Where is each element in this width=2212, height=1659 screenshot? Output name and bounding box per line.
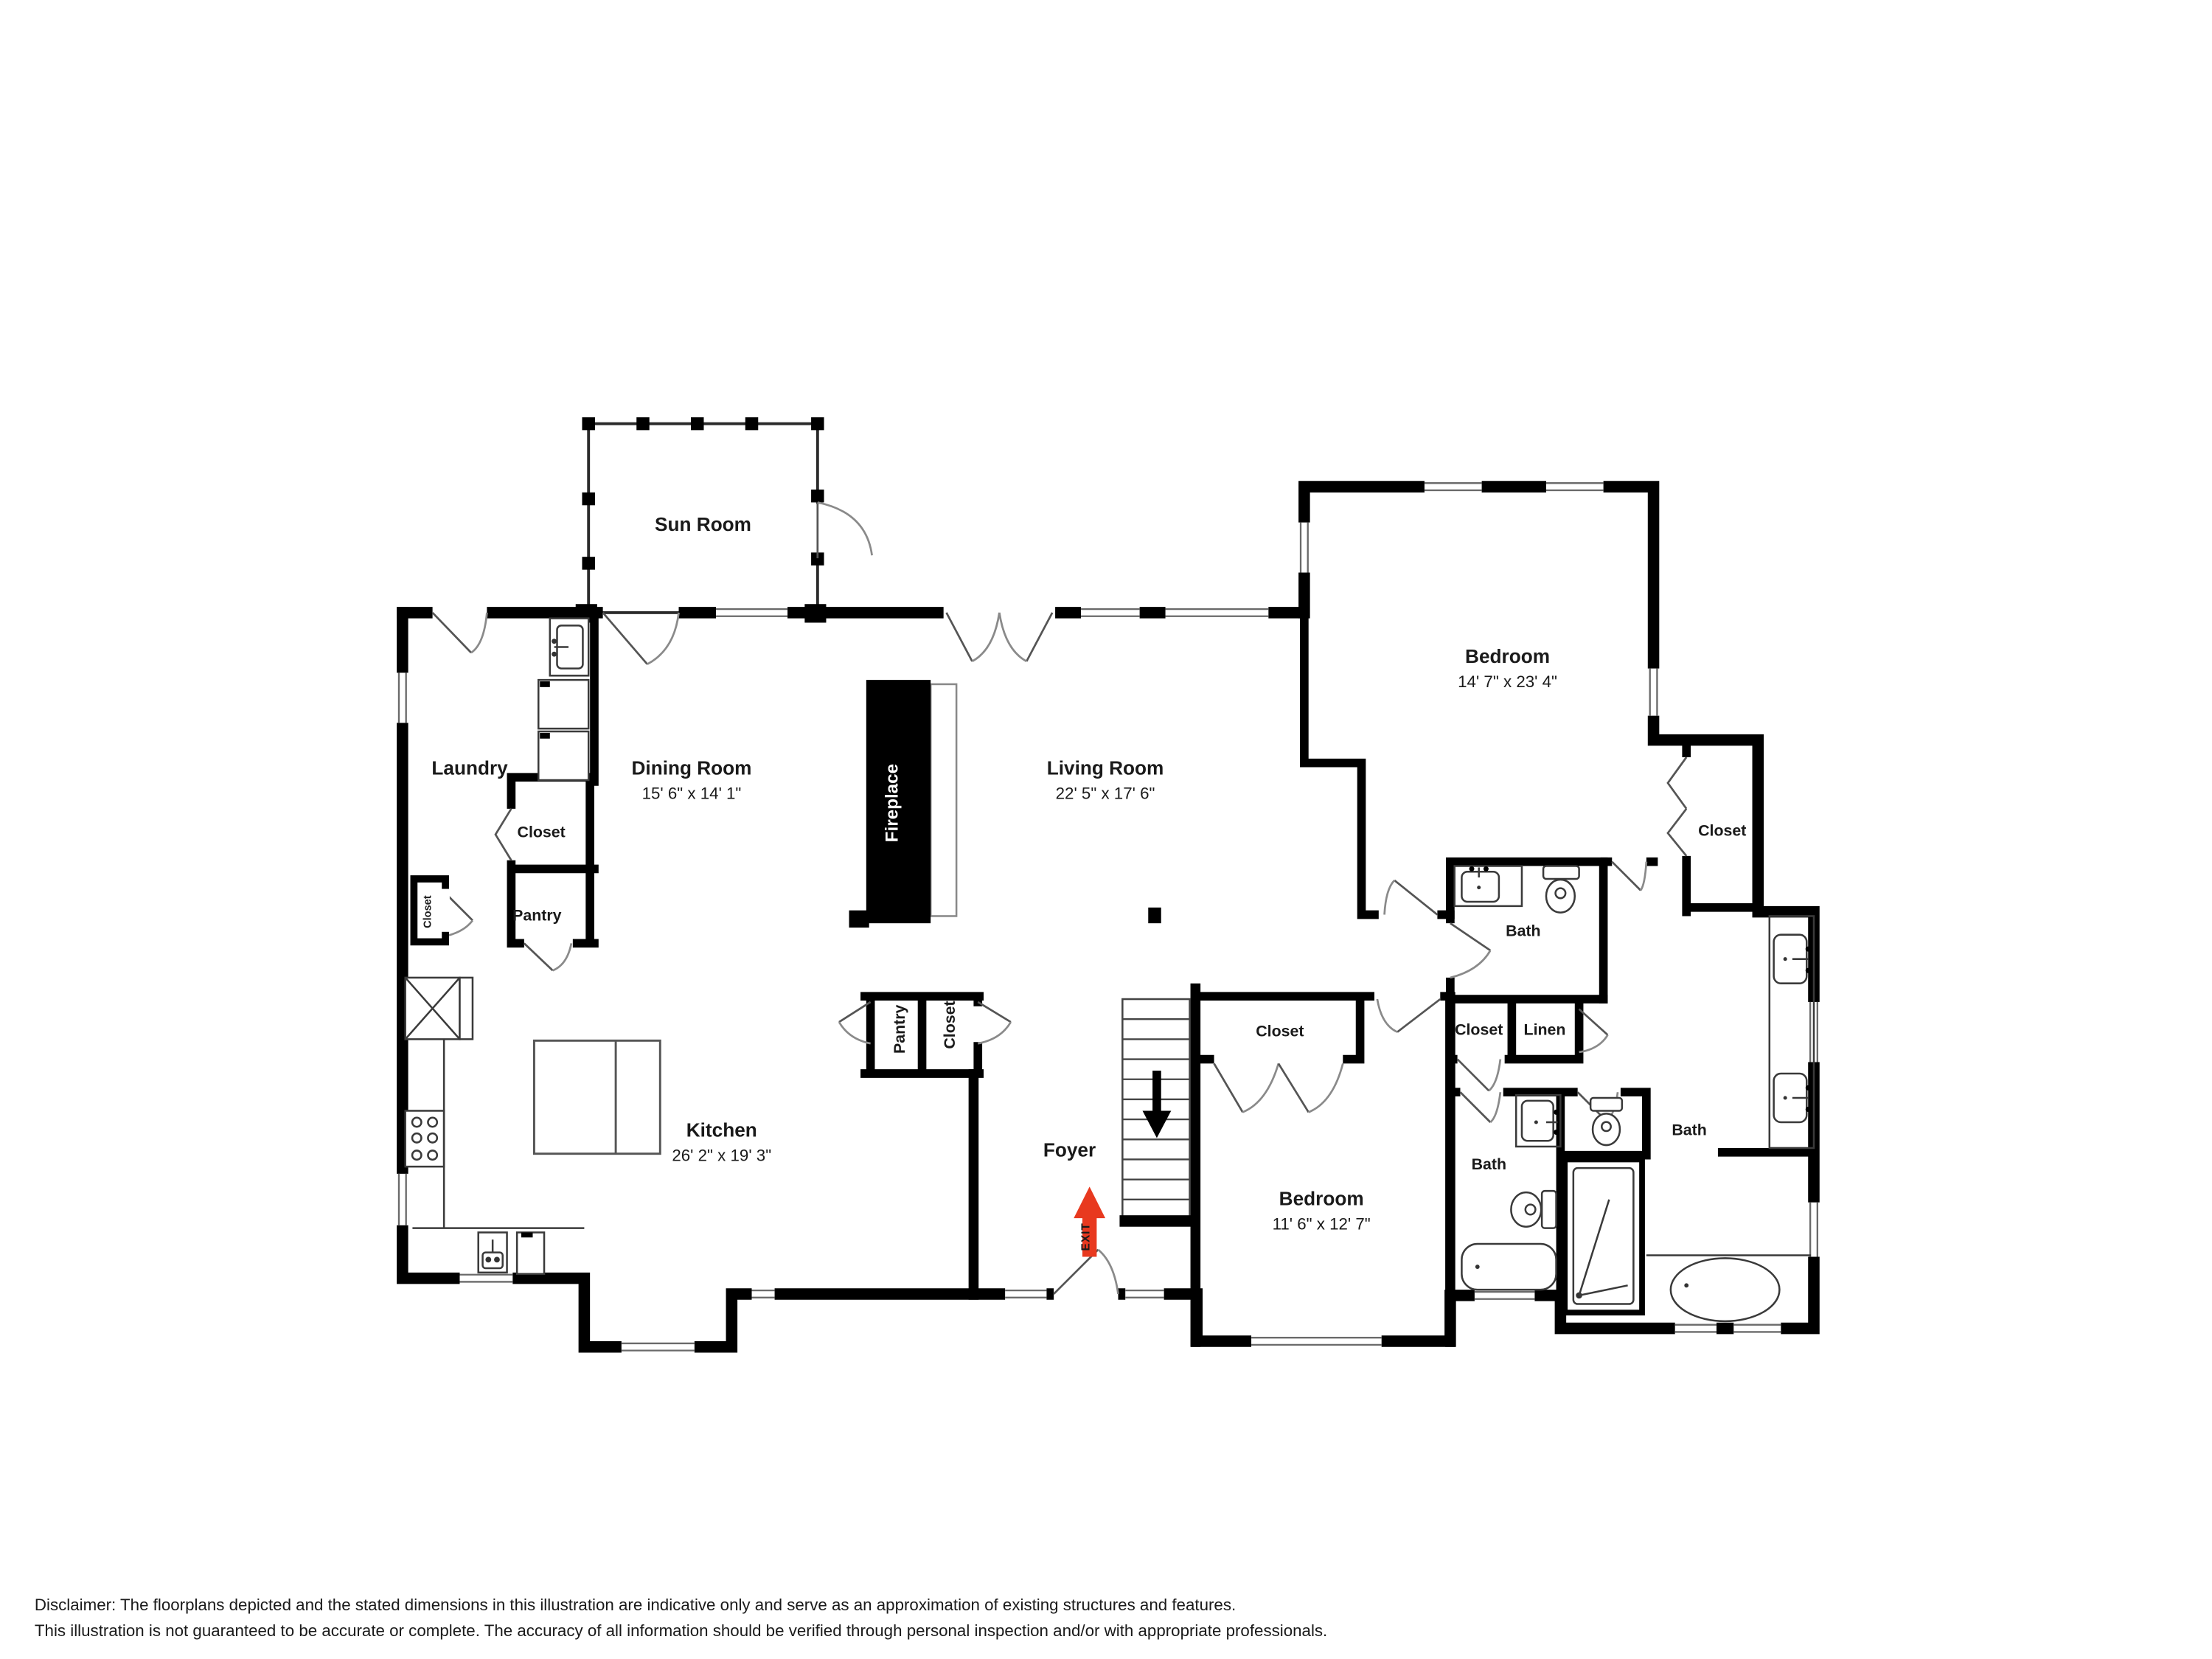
fireplace-label: Fireplace [883, 764, 902, 843]
dining-room-label: Dining Room [632, 757, 752, 779]
shower-icon [1565, 1159, 1642, 1312]
kitchen-label: Kitchen [686, 1119, 757, 1141]
washer-icon [538, 680, 588, 728]
disclaimer-line-1: Disclaimer: The floorplans depicted and … [35, 1596, 1236, 1614]
sink-icon [1461, 866, 1498, 902]
toilet-icon [1511, 1191, 1556, 1228]
bedroom-main-label: Bedroom [1465, 645, 1550, 667]
page-background [0, 0, 2211, 1659]
bath-hall-label: Bath [1506, 922, 1540, 940]
bedroom-second-label: Bedroom [1279, 1188, 1364, 1210]
refrigerator-icon [406, 978, 473, 1039]
bedroom-main-dims: 14' 7" x 23' 4" [1458, 672, 1557, 691]
living-room-dims: 22' 5" x 17' 6" [1056, 784, 1155, 802]
living-room-label: Living Room [1047, 757, 1164, 779]
kitchen-sink-icon [479, 1232, 507, 1272]
dishwasher-icon [517, 1232, 544, 1273]
bathtub-icon [1461, 1244, 1556, 1290]
closet-left-wall-label: Closet [422, 895, 434, 928]
newel-post [1148, 908, 1161, 923]
closet-master-label: Closet [1698, 822, 1746, 840]
toilet-icon [1590, 1098, 1622, 1145]
kitchen-dims: 26' 2" x 19' 3" [672, 1146, 771, 1164]
kitchen-island [534, 1040, 660, 1153]
dryer-icon [538, 731, 588, 780]
closet-laundry-label: Closet [518, 824, 566, 841]
cooktop-icon [406, 1110, 444, 1166]
pantry-laundry-label: Pantry [512, 906, 562, 924]
bath-second-label: Bath [1472, 1155, 1506, 1173]
floor-plan: Fireplace [0, 0, 2212, 1659]
bath-master-label: Bath [1672, 1121, 1706, 1138]
foyer-label: Foyer [1043, 1139, 1096, 1161]
sun-room-label: Sun Room [655, 513, 751, 535]
dining-room-dims: 15' 6" x 14' 1" [642, 784, 742, 802]
linen-label: Linen [1524, 1021, 1566, 1039]
utility-sink-icon [550, 619, 588, 676]
bedroom-second-dims: 11' 6" x 12' 7" [1273, 1215, 1371, 1234]
pantry-foyer-label: Pantry [891, 1004, 908, 1054]
water-closet-fixtures [1590, 1098, 1622, 1145]
closet-foyer-label: Closet [941, 1001, 959, 1048]
closet-hall-small-label: Closet [1455, 1021, 1503, 1039]
closet-bedroom-label: Closet [1256, 1023, 1304, 1040]
laundry-label: Laundry [431, 757, 508, 779]
exit-label: EXIT [1080, 1222, 1093, 1251]
sink-icon [1522, 1101, 1559, 1141]
disclaimer-line-2: This illustration is not guaranteed to b… [35, 1621, 1327, 1640]
